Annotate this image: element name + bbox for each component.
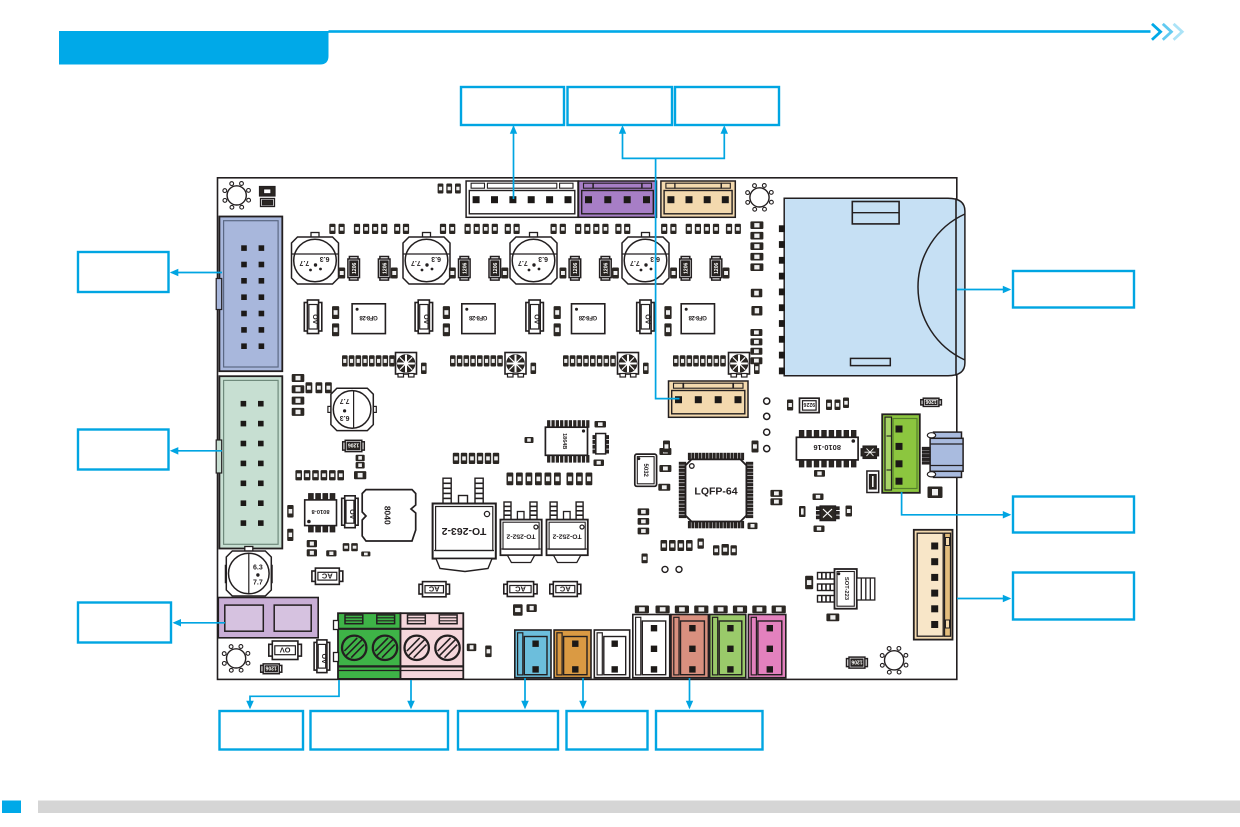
svg-text:GF8-28: GF8-28 xyxy=(578,314,597,320)
svg-text:1206: 1206 xyxy=(352,263,358,274)
svg-text:8010-8: 8010-8 xyxy=(311,508,330,514)
svg-text:1206: 1206 xyxy=(714,263,720,274)
svg-text:1206: 1206 xyxy=(925,398,936,404)
svg-text:TO-263-2: TO-263-2 xyxy=(441,525,486,537)
svg-text:SOT-223: SOT-223 xyxy=(843,577,849,601)
svg-text:1206: 1206 xyxy=(493,263,499,274)
svg-text:OV: OV xyxy=(311,314,318,324)
svg-text:GF8-28: GF8-28 xyxy=(359,314,378,320)
svg-text:1206: 1206 xyxy=(573,263,579,274)
svg-text:1206: 1206 xyxy=(265,665,276,671)
svg-text:5032: 5032 xyxy=(642,464,648,478)
svg-text:OV: OV xyxy=(533,314,540,324)
svg-text:1206: 1206 xyxy=(604,263,610,274)
svg-text:TO-252-2: TO-252-2 xyxy=(552,532,581,539)
svg-text:1864B: 1864B xyxy=(561,433,567,449)
svg-text:7.7: 7.7 xyxy=(518,259,528,266)
svg-text:GF8-28: GF8-28 xyxy=(468,314,487,320)
svg-text:OV: OV xyxy=(320,654,327,664)
svg-text:6.3: 6.3 xyxy=(340,414,350,421)
svg-text:8040: 8040 xyxy=(382,506,392,525)
svg-text:OV: OV xyxy=(644,314,651,324)
svg-text:1206: 1206 xyxy=(684,263,690,274)
svg-text:1206: 1206 xyxy=(382,263,388,274)
svg-text:OV: OV xyxy=(422,314,429,324)
svg-text:AC: AC xyxy=(559,585,570,594)
svg-text:AC: AC xyxy=(428,585,439,594)
svg-text:1206: 1206 xyxy=(851,658,862,664)
svg-text:6.3: 6.3 xyxy=(320,255,330,262)
svg-text:7.7: 7.7 xyxy=(411,259,421,266)
svg-text:7.7: 7.7 xyxy=(299,259,309,266)
svg-text:7.7: 7.7 xyxy=(253,580,263,587)
svg-text:9226: 9226 xyxy=(803,401,815,407)
svg-text:6.3: 6.3 xyxy=(538,255,548,262)
svg-text:OV: OV xyxy=(280,646,291,655)
svg-text:AC: AC xyxy=(515,585,526,594)
svg-text:LQFP-64: LQFP-64 xyxy=(694,486,737,498)
svg-text:AC: AC xyxy=(321,572,332,581)
svg-text:1206: 1206 xyxy=(463,263,469,274)
svg-text:1206: 1206 xyxy=(348,442,359,448)
svg-text:TO-252-2: TO-252-2 xyxy=(506,532,535,539)
svg-text:7.7: 7.7 xyxy=(340,397,350,404)
svg-text:7.7: 7.7 xyxy=(630,259,640,266)
svg-text:6.3: 6.3 xyxy=(253,565,263,572)
svg-text:8010-16: 8010-16 xyxy=(813,443,841,452)
svg-text:6.3: 6.3 xyxy=(431,255,441,262)
svg-text:GF8-28: GF8-28 xyxy=(688,314,707,320)
svg-text:OV: OV xyxy=(348,509,355,519)
